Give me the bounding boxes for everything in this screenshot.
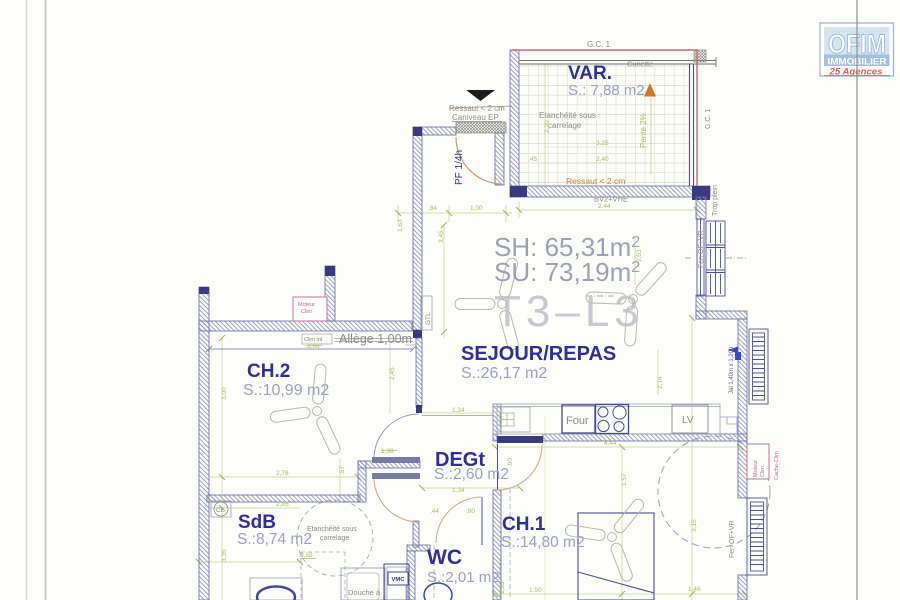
svg-text:Fen OF+VR: Fen OF+VR: [729, 520, 736, 558]
svg-text:,44: ,44: [430, 508, 439, 515]
svg-text:CH.2: CH.2: [247, 361, 290, 382]
svg-text:SU: 73,19m2: SU: 73,19m2: [494, 257, 640, 287]
svg-text:2,85: 2,85: [276, 501, 289, 508]
svg-text:2,14: 2,14: [657, 376, 664, 389]
svg-text:S.:8,74 m2: S.:8,74 m2: [237, 531, 312, 548]
svg-text:2,45: 2,45: [389, 367, 396, 380]
svg-text:2,20: 2,20: [544, 120, 551, 133]
svg-text:,57: ,57: [339, 466, 346, 475]
svg-text:SdB: SdB: [238, 512, 276, 533]
svg-text:S.:26,17 m2: S.:26,17 m2: [461, 365, 547, 382]
svg-text:Moteur: Moteur: [298, 302, 315, 308]
svg-text:3,15: 3,15: [691, 519, 698, 532]
svg-text:carrelage: carrelage: [548, 121, 582, 130]
svg-text:G.C. 1: G.C. 1: [705, 109, 712, 129]
svg-text:Allège 1,00m: Allège 1,00m: [339, 332, 412, 346]
svg-text:carrelage: carrelage: [320, 535, 349, 542]
svg-text:,45: ,45: [528, 156, 537, 163]
svg-text:GTL: GTL: [425, 312, 432, 325]
svg-text:1,57: 1,57: [621, 473, 628, 486]
svg-text:1,63: 1,63: [397, 219, 404, 232]
svg-text:,84: ,84: [428, 205, 437, 212]
svg-text:PF 1/4h: PF 1/4h: [454, 150, 465, 185]
svg-text:Douche à: Douche à: [348, 588, 381, 597]
svg-text:Ressaut < 2 cm: Ressaut < 2 cm: [449, 104, 505, 113]
svg-text:T3–L3: T3–L3: [494, 287, 644, 336]
svg-text:3,66: 3,66: [307, 343, 320, 350]
svg-text:4,44: 4,44: [604, 440, 617, 447]
svg-text:S.:14,80 m2: S.:14,80 m2: [501, 534, 585, 551]
svg-text:S.: 7,88 m2: S.: 7,88 m2: [568, 82, 645, 99]
svg-text:Cunette: Cunette: [627, 60, 653, 69]
svg-text:Caniveau EP: Caniveau EP: [452, 113, 499, 122]
svg-text:Pente 2%: Pente 2%: [639, 113, 648, 148]
svg-text:1,38: 1,38: [381, 448, 394, 455]
svg-text:SEJOUR/REPAS: SEJOUR/REPAS: [461, 343, 616, 365]
svg-text:Jal 1,40m x 1,20h: Jal 1,40m x 1,20h: [729, 347, 735, 394]
svg-text:1,46: 1,46: [688, 586, 701, 593]
svg-text:3,35: 3,35: [221, 549, 228, 562]
svg-text:1,34: 1,34: [452, 407, 465, 414]
svg-text:1,00: 1,00: [470, 205, 483, 212]
svg-text:Clim: Clim: [301, 309, 312, 315]
svg-text:3,00: 3,00: [221, 387, 228, 400]
svg-text:Fen OF+VR: Fen OF+VR: [698, 230, 705, 268]
svg-text:Etanchéité sous: Etanchéité sous: [307, 526, 357, 533]
svg-text:S.:10,99 m2: S.:10,99 m2: [243, 382, 329, 399]
svg-text:3,68: 3,68: [300, 552, 313, 559]
svg-text:S.:2,60 m2: S.:2,60 m2: [434, 466, 509, 483]
svg-text:,90: ,90: [466, 508, 475, 515]
svg-text:Etanchéité sous: Etanchéité sous: [539, 111, 596, 120]
svg-text:LV: LV: [682, 415, 694, 426]
svg-text:Ressaut < 2 cm: Ressaut < 2 cm: [566, 176, 625, 186]
svg-text:Four: Four: [566, 415, 589, 427]
svg-text:1,93: 1,93: [499, 581, 506, 594]
svg-text:1,34: 1,34: [452, 487, 465, 494]
svg-text:G.C. 1: G.C. 1: [587, 40, 611, 49]
svg-text:2,53: 2,53: [636, 249, 643, 262]
svg-text:Moteur: Moteur: [753, 460, 759, 477]
svg-text:CH.1: CH.1: [502, 514, 546, 535]
svg-text:Cache-Clim: Cache-Clim: [774, 451, 780, 480]
svg-text:2,40: 2,40: [596, 156, 609, 163]
svg-text:CE: CE: [216, 508, 224, 514]
svg-text:3,25: 3,25: [596, 140, 609, 147]
svg-text:1,50: 1,50: [529, 587, 542, 594]
svg-text:2,44: 2,44: [598, 203, 611, 210]
svg-text:,90: ,90: [507, 458, 514, 467]
svg-text:Trop plein: Trop plein: [712, 185, 719, 216]
svg-text:VAR.: VAR.: [568, 63, 612, 84]
svg-text:2,78: 2,78: [276, 470, 289, 477]
svg-text:WC: WC: [427, 546, 462, 569]
svg-text:Clim: Clim: [760, 466, 766, 477]
svg-text:S.:2,01 m2: S.:2,01 m2: [427, 569, 500, 586]
svg-text:VMC: VMC: [392, 577, 406, 583]
svg-text:3,45: 3,45: [438, 230, 445, 243]
